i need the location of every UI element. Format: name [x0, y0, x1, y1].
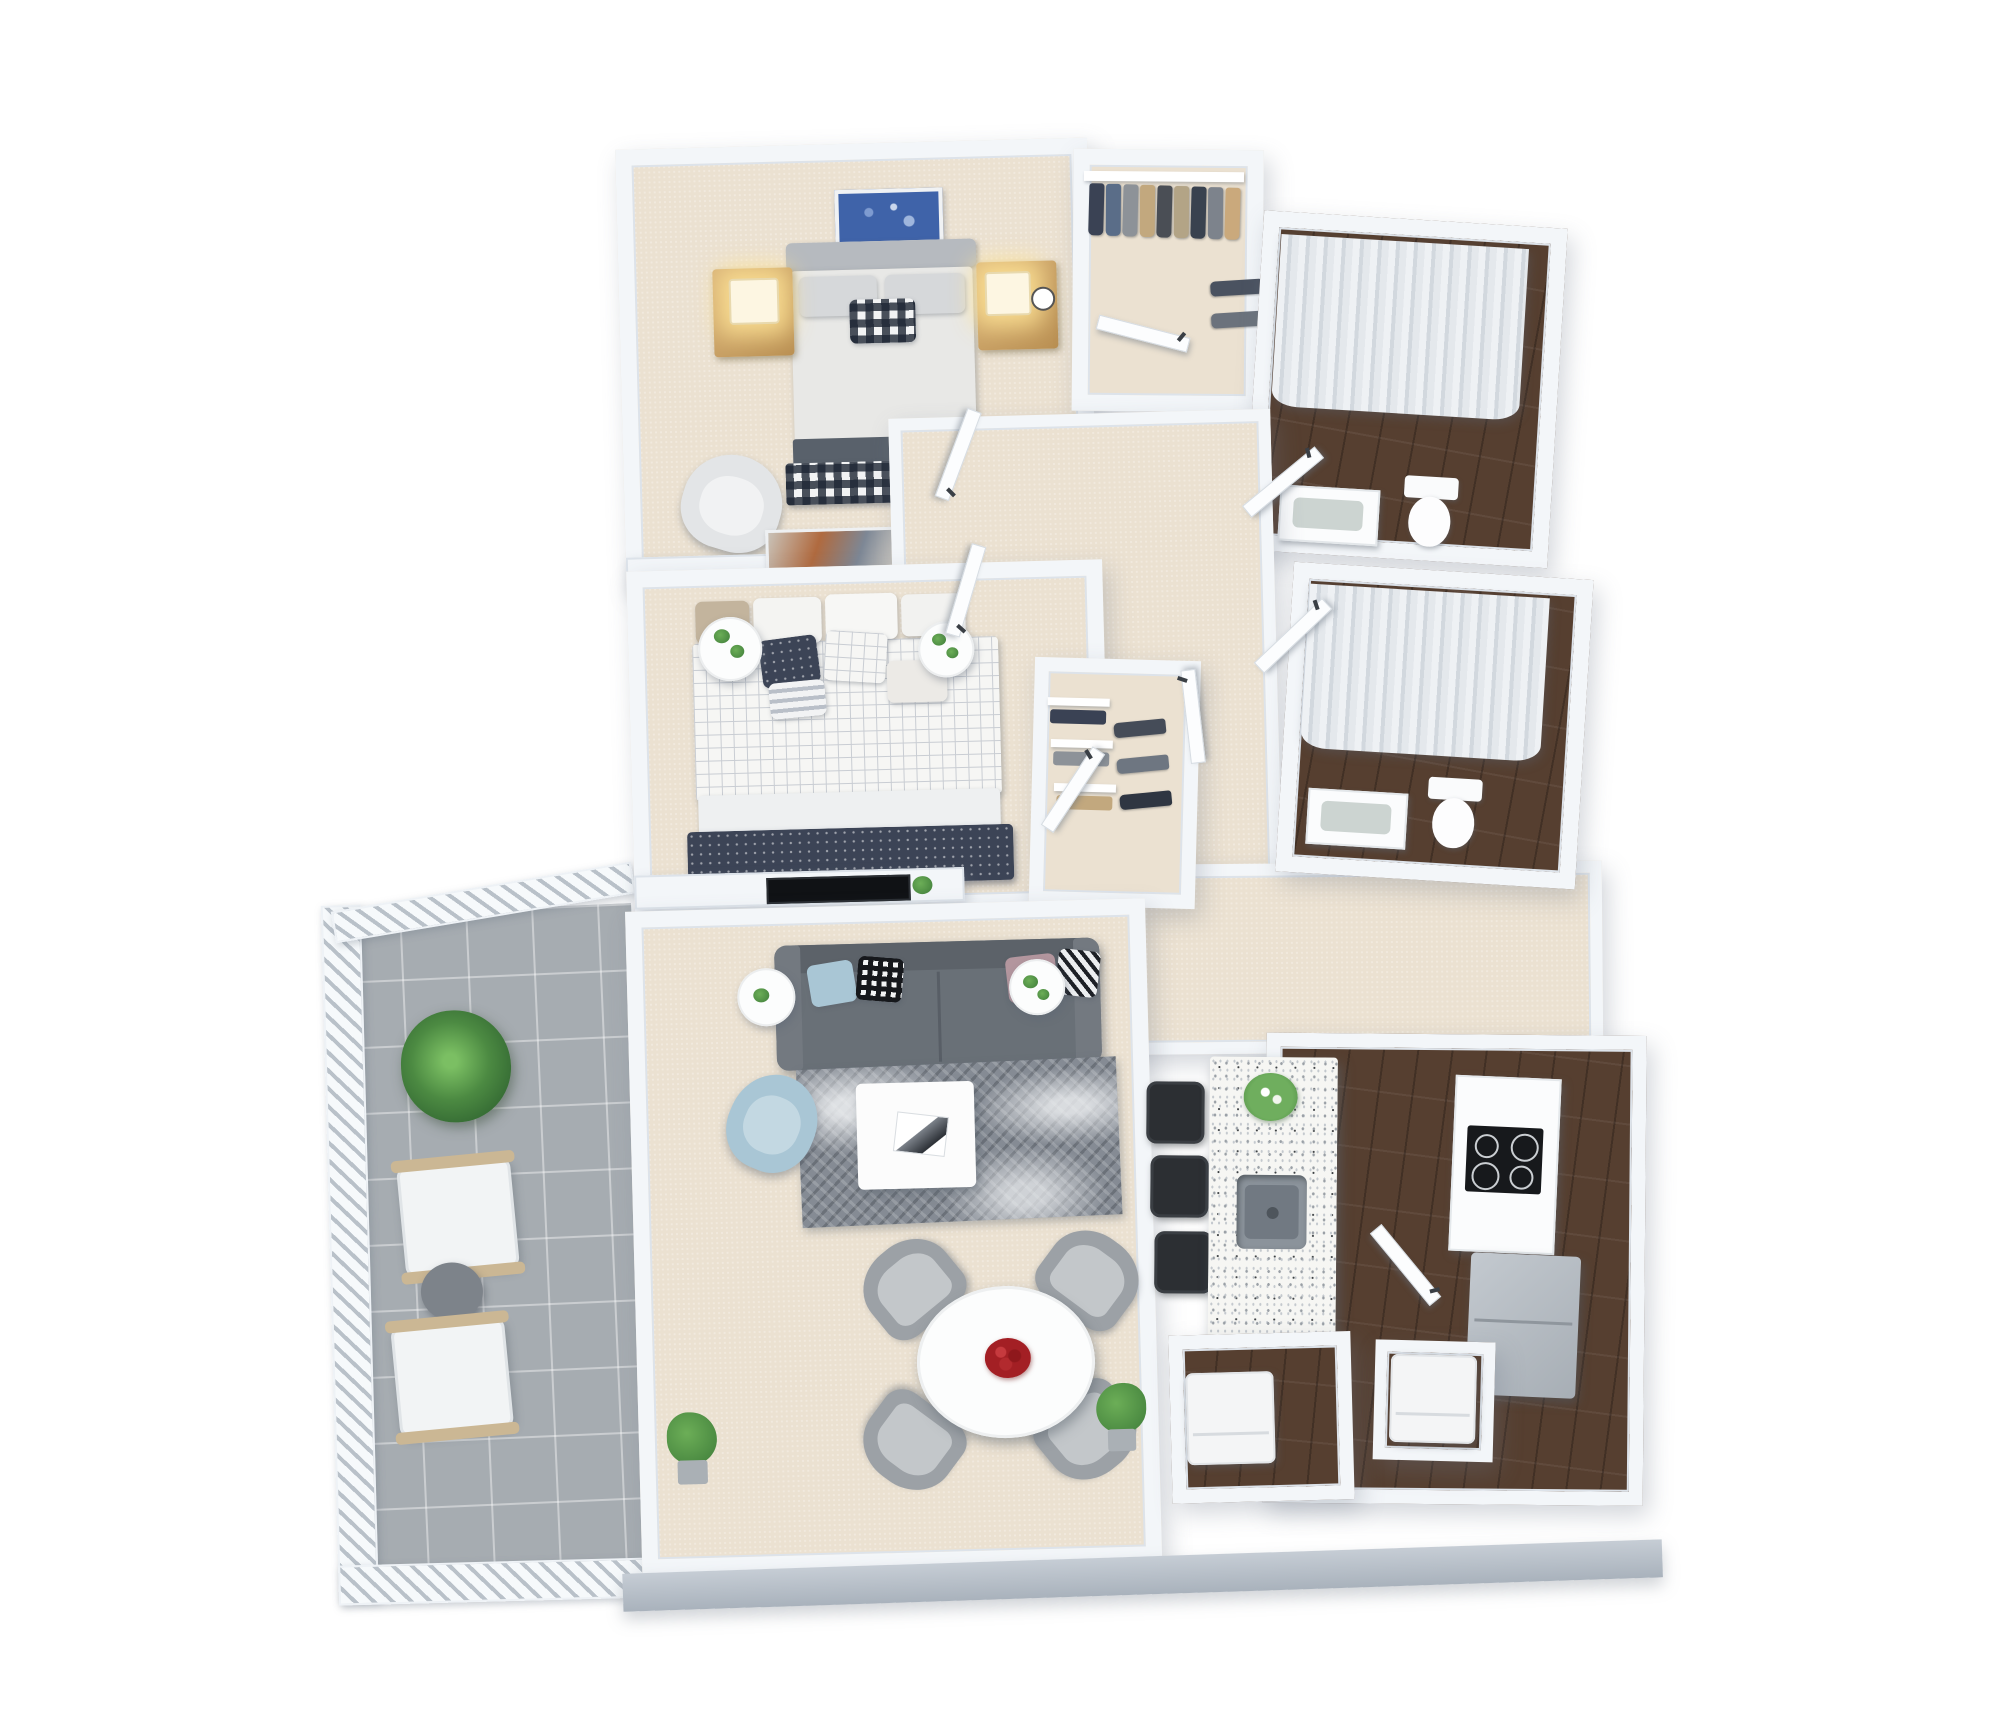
door-handle	[1084, 749, 1093, 760]
plant-foliage	[1096, 1382, 1147, 1433]
hanging-jacket	[1156, 185, 1172, 237]
coffee-table	[856, 1081, 977, 1190]
armchair-cushion	[693, 469, 771, 543]
shower-curtain-1	[1271, 234, 1529, 421]
pillow-grid	[823, 630, 888, 684]
tv-living	[766, 874, 911, 904]
hanging-khaki	[1174, 186, 1189, 238]
blue-wall-art	[834, 187, 943, 246]
burner	[1471, 1161, 1500, 1190]
mini-plant	[1037, 989, 1049, 1000]
burner	[1510, 1133, 1539, 1162]
hanging-coat	[1224, 188, 1240, 240]
apartment-3d-floorplan	[0, 0, 2000, 1726]
closet-shelf	[1048, 697, 1110, 707]
door-handle	[1305, 447, 1311, 458]
mini-plant	[932, 633, 946, 645]
washer	[1185, 1371, 1275, 1465]
kitchen-island	[1208, 1056, 1338, 1339]
hanging-khaki	[1140, 185, 1155, 237]
sofa-pillow-checkered	[855, 955, 904, 1002]
toilet-1	[1401, 475, 1459, 550]
mini-plant	[946, 647, 958, 658]
fridge-door-seam	[1474, 1318, 1572, 1325]
burner	[1509, 1165, 1534, 1190]
vanity-2	[1305, 788, 1408, 850]
island-flower-vase	[1243, 1073, 1297, 1121]
nightstand-right	[976, 260, 1058, 350]
balcony-lounge-chair-1	[396, 1157, 520, 1277]
cooktop	[1465, 1125, 1544, 1194]
folded-clothes	[1050, 709, 1106, 724]
nightstand-left	[712, 267, 794, 357]
toilet-bowl	[1431, 797, 1476, 849]
alarm-clock	[1031, 286, 1056, 311]
bar-stool-2	[1150, 1155, 1209, 1218]
mini-plant	[753, 988, 769, 1002]
door-handle	[1429, 1287, 1440, 1293]
washer-lid-seam	[1193, 1431, 1269, 1436]
mini-plant	[730, 645, 744, 658]
hanging-shirt	[1122, 184, 1138, 236]
toilet-2	[1425, 777, 1483, 852]
kitchen-sink	[1236, 1175, 1307, 1250]
hanging-jeans	[1106, 184, 1121, 236]
dryer	[1389, 1354, 1477, 1444]
plant-pot	[677, 1460, 708, 1485]
balcony-lounge-chair-2	[390, 1317, 514, 1437]
toilet-bowl	[1407, 495, 1452, 547]
vanity-sink-basin	[1320, 801, 1392, 835]
side-hanging-coat	[1210, 279, 1263, 297]
kitchen-counter-right	[1448, 1075, 1562, 1255]
door-handle	[1313, 600, 1320, 611]
magazine	[893, 1111, 949, 1157]
sink-faucet	[1267, 1207, 1279, 1219]
floorplan-canvas	[0, 0, 2000, 1700]
balcony-railing-bottom	[338, 1557, 661, 1605]
armchair-cushion	[735, 1087, 809, 1162]
hanging-shirt	[1208, 187, 1223, 239]
bar-stool-1	[1146, 1081, 1205, 1144]
mini-plant	[714, 629, 730, 643]
table-lamp-lit	[729, 278, 780, 325]
vanity-sink-basin	[1292, 497, 1364, 531]
floor-plant-left	[662, 1412, 722, 1487]
burner	[1474, 1134, 1499, 1159]
plant-pot	[1108, 1429, 1137, 1452]
table-lamp-lit	[984, 271, 1031, 316]
closet-shelf	[1051, 739, 1113, 749]
closet-rod	[1084, 171, 1244, 182]
vanity-1	[1277, 484, 1380, 546]
side-hanging-coat	[1211, 311, 1264, 329]
red-flower-centerpiece	[984, 1337, 1031, 1378]
shower-curtain-2	[1300, 584, 1550, 762]
hanging-jacket	[1088, 183, 1104, 235]
mini-plant	[1023, 975, 1038, 988]
dryer-lid-seam	[1396, 1412, 1470, 1417]
hanging-jacket	[1190, 186, 1206, 238]
gingham-accent-pillow	[849, 298, 916, 344]
plant-foliage	[666, 1412, 717, 1465]
pillow-striped	[768, 679, 827, 720]
sofa-pillow-lightblue	[806, 959, 858, 1008]
bar-stool-3	[1154, 1231, 1213, 1294]
floor-plant-right	[1094, 1382, 1150, 1453]
